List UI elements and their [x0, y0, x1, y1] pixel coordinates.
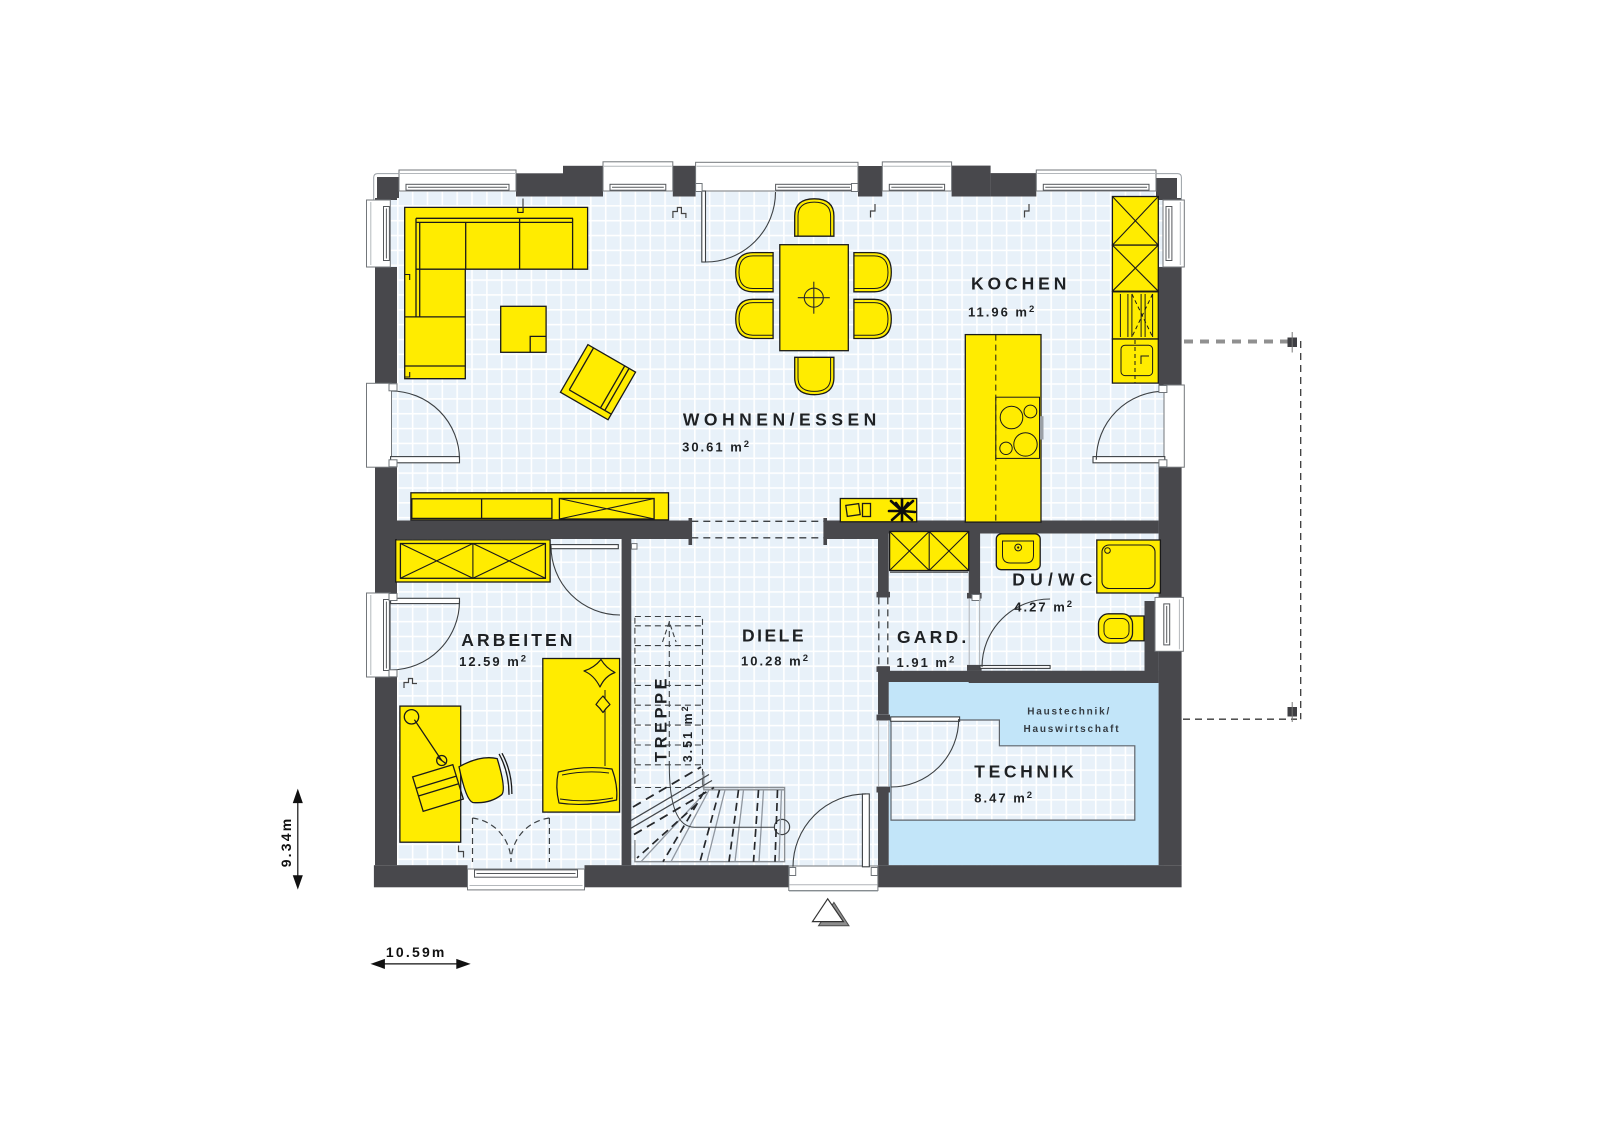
svg-text:8.47 m2: 8.47 m2	[974, 790, 1034, 806]
svg-text:10.59m: 10.59m	[386, 944, 447, 960]
svg-text:1.91 m2: 1.91 m2	[897, 654, 957, 670]
svg-text:Hauswirtschaft: Hauswirtschaft	[1024, 724, 1121, 735]
svg-text:DU/WC: DU/WC	[1012, 569, 1097, 589]
svg-text:Haustechnik/: Haustechnik/	[1027, 706, 1111, 717]
svg-text:9.34m: 9.34m	[278, 817, 294, 868]
svg-text:DIELE: DIELE	[742, 626, 806, 646]
svg-text:3.51 m2: 3.51 m2	[680, 704, 695, 762]
svg-text:ARBEITEN: ARBEITEN	[461, 630, 575, 650]
svg-text:WOHNEN/ESSEN: WOHNEN/ESSEN	[683, 409, 881, 429]
svg-text:4.27 m2: 4.27 m2	[1014, 599, 1074, 615]
svg-text:12.59 m2: 12.59 m2	[459, 654, 528, 670]
svg-text:TECHNIK: TECHNIK	[974, 761, 1077, 781]
svg-text:KOCHEN: KOCHEN	[971, 273, 1070, 293]
svg-text:GARD.: GARD.	[897, 627, 969, 647]
svg-text:11.96 m2: 11.96 m2	[968, 304, 1036, 320]
svg-text:10.28 m2: 10.28 m2	[741, 653, 810, 669]
svg-text:30.61 m2: 30.61 m2	[682, 439, 751, 455]
svg-text:TREPPE: TREPPE	[653, 675, 671, 762]
